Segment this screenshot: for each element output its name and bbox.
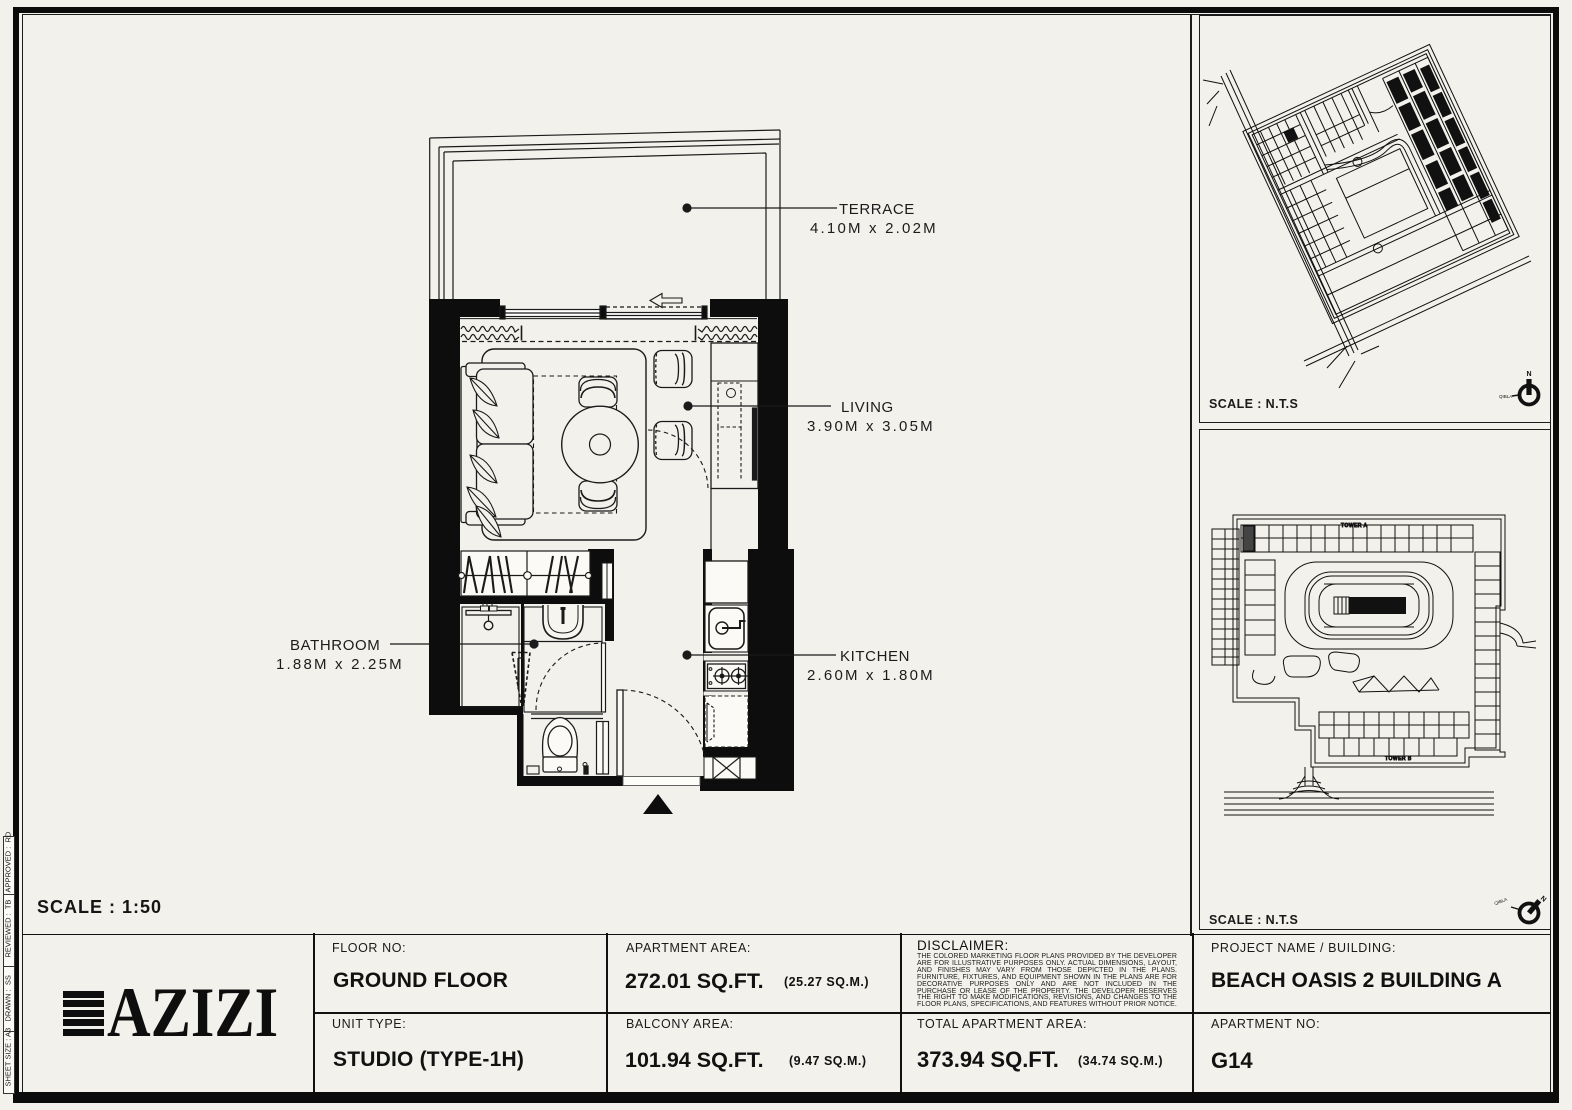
svg-text:TOWER B: TOWER B — [1385, 756, 1412, 762]
svg-text:2.60M x 1.80M: 2.60M x 1.80M — [807, 667, 935, 684]
svg-text:3.90M x 3.05M: 3.90M x 3.05M — [807, 418, 935, 435]
svg-text:LIVING: LIVING — [841, 399, 894, 416]
svg-text:QIBLA: QIBLA — [1499, 394, 1512, 399]
svg-text:1.88M x 2.25M: 1.88M x 2.25M — [276, 656, 404, 673]
svg-text:KITCHEN: KITCHEN — [840, 648, 910, 665]
svg-text:QIBLA: QIBLA — [1494, 897, 1508, 906]
svg-text:N: N — [1526, 371, 1531, 378]
svg-text:BATHROOM: BATHROOM — [290, 637, 380, 654]
svg-text:TERRACE: TERRACE — [839, 201, 915, 218]
svg-text:TOWER A: TOWER A — [1341, 523, 1368, 529]
svg-text:4.10M x 2.02M: 4.10M x 2.02M — [810, 220, 938, 237]
